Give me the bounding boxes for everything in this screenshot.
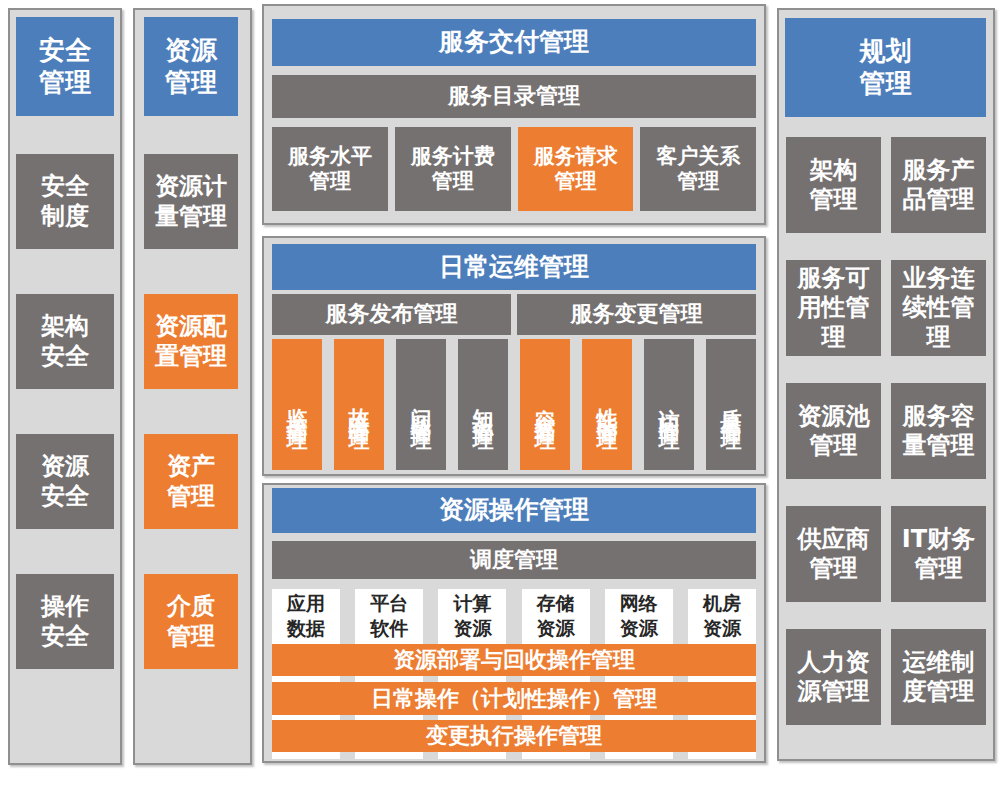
resource-pool-box: 资源池 管理 (786, 383, 881, 479)
problem-box: 问题管理 (396, 339, 446, 470)
daily-ops-title: 日常运维管理 (272, 244, 756, 290)
disaster-recovery-box: 容灾管理 (520, 339, 570, 470)
planning-panel: 规划 管理 架构 管理 服务产 品管理 服务可 用性管 理 业务连 续性管 理 … (777, 8, 995, 761)
daily-ops-bars: 服务发布管理 服务变更管理 (272, 294, 756, 335)
resource-title: 资源 管理 (144, 17, 238, 116)
planning-grid: 架构 管理 服务产 品管理 服务可 用性管 理 业务连 续性管 理 资源池 管理… (786, 137, 986, 725)
resource-security-box: 资源 安全 (16, 434, 114, 529)
it-finance-box: IT财务 管理 (891, 506, 986, 602)
human-resource-box: 人力资 源管理 (786, 629, 881, 725)
performance-box: 性能管理 (582, 339, 632, 470)
datacenter-resource-label: 机房 资源 (688, 589, 756, 643)
security-panel: 安全 管理 安全 制度 架构 安全 资源 安全 操作 安全 (8, 8, 122, 765)
service-delivery-panel: 服务交付管理 服务目录管理 服务水平 管理 服务计费 管理 服务请求 管理 客户… (262, 4, 766, 225)
service-change-bar: 服务变更管理 (517, 294, 756, 335)
planning-title: 规划 管理 (785, 18, 986, 117)
service-capacity-box: 服务容 量管理 (891, 383, 986, 479)
quality-box: 质量管理 (706, 339, 756, 470)
media-management-box: 介质 管理 (144, 574, 238, 669)
monitoring-box: 监控管理 (272, 339, 322, 470)
change-execution-ops-bar: 变更执行操作管理 (272, 720, 756, 752)
resource-ops-grid: 应用 数据 平台 软件 计算 资源 存储 资源 网络 资源 机房 资源 资源 (272, 589, 756, 759)
service-catalog-bar: 服务目录管理 (272, 75, 756, 118)
knowledge-box: 知识管理 (458, 339, 508, 470)
supplier-mgmt-box: 供应商 管理 (786, 506, 881, 602)
customer-relationship-box: 客户关系 管理 (640, 127, 756, 211)
platform-software-label: 平台 软件 (355, 589, 423, 643)
diagram-canvas: 安全 管理 安全 制度 架构 安全 资源 安全 操作 安全 资源 管理 资源计 … (0, 0, 1000, 785)
security-policy-box: 安全 制度 (16, 154, 114, 249)
resource-configuration-box: 资源配 置管理 (144, 294, 238, 389)
resource-panel: 资源 管理 资源计 量管理 资源配 置管理 资产 管理 介质 管理 (133, 8, 252, 765)
operation-security-box: 操作 安全 (16, 574, 114, 669)
service-delivery-title: 服务交付管理 (272, 19, 756, 66)
service-availability-box: 服务可 用性管 理 (786, 260, 881, 356)
daily-ops-panel: 日常运维管理 服务发布管理 服务变更管理 监控管理 故障管理 问题管理 知识管理… (262, 236, 766, 476)
service-billing-box: 服务计费 管理 (395, 127, 511, 211)
service-release-bar: 服务发布管理 (272, 294, 511, 335)
dispatch-bar: 调度管理 (272, 541, 756, 579)
resource-ops-title: 资源操作管理 (272, 488, 756, 533)
deploy-recycle-ops-bar: 资源部署与回收操作管理 (272, 644, 756, 676)
security-title: 安全 管理 (16, 17, 114, 116)
architecture-security-box: 架构 安全 (16, 294, 114, 389)
asset-management-box: 资产 管理 (144, 434, 238, 529)
ops-policy-box: 运维制 度管理 (891, 629, 986, 725)
resource-ops-panel: 资源操作管理 调度管理 应用 数据 平台 软件 计算 资源 存储 资源 网络 资… (262, 483, 766, 763)
storage-resource-label: 存储 资源 (522, 589, 590, 643)
architecture-mgmt-box: 架构 管理 (786, 137, 881, 233)
daily-ops-row: 监控管理 故障管理 问题管理 知识管理 容灾管理 性能管理 访问管理 质量管理 (272, 339, 756, 470)
incident-box: 故障管理 (334, 339, 384, 470)
resource-metering-box: 资源计 量管理 (144, 154, 238, 249)
service-request-box: 服务请求 管理 (518, 127, 634, 211)
app-data-label: 应用 数据 (272, 589, 340, 643)
service-delivery-row: 服务水平 管理 服务计费 管理 服务请求 管理 客户关系 管理 (272, 127, 756, 211)
business-continuity-box: 业务连 续性管 理 (891, 260, 986, 356)
service-product-box: 服务产 品管理 (891, 137, 986, 233)
service-level-box: 服务水平 管理 (272, 127, 388, 211)
compute-resource-label: 计算 资源 (438, 589, 506, 643)
daily-planned-ops-bar: 日常操作（计划性操作）管理 (272, 682, 756, 715)
access-box: 访问管理 (644, 339, 694, 470)
network-resource-label: 网络 资源 (605, 589, 673, 643)
